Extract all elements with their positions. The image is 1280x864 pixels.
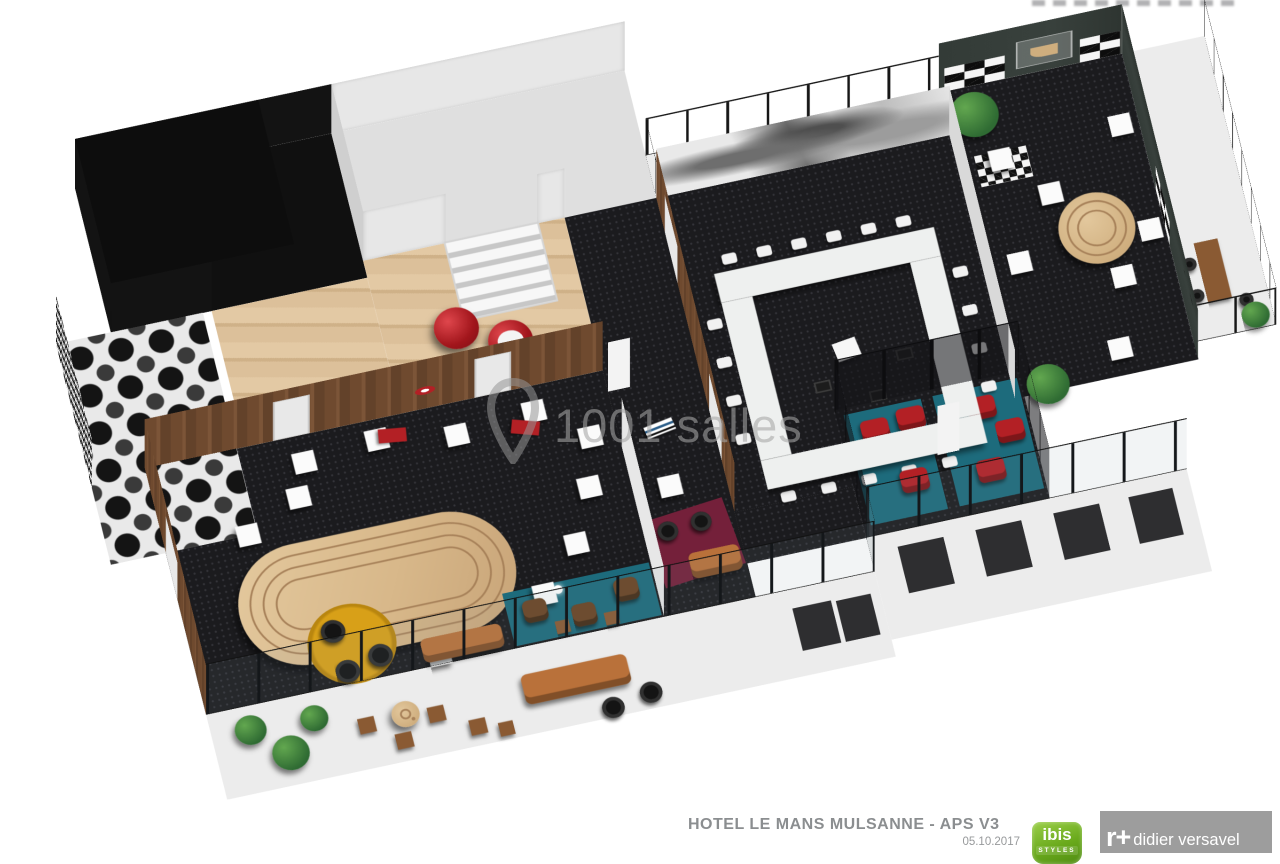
racing-roundel-sign (415, 384, 435, 396)
service-south-wall (537, 168, 564, 223)
meeting-chair (825, 230, 842, 243)
ibis-logo-name: ibis (1032, 825, 1082, 845)
meeting-chair (860, 222, 877, 235)
ibis-logo-subtitle: STYLES (1036, 846, 1078, 855)
red-racing-table (511, 419, 540, 435)
meeting-chair (725, 394, 742, 407)
architect-logo-name: didier versavel (1133, 831, 1239, 849)
architect-logo-mark: r+ (1106, 825, 1130, 849)
meeting-chair (756, 244, 773, 257)
meeting-chair (895, 215, 912, 228)
project-title: HOTEL LE MANS MULSANNE - APS V3 (688, 816, 1000, 834)
architect-logo: r+ didier versavel (1100, 811, 1272, 853)
meeting-chair (721, 252, 738, 265)
meeting-chair (820, 481, 837, 494)
hotel-floorplan-3d (20, 0, 1280, 845)
glass-display-panel (1016, 30, 1073, 69)
double-door (474, 351, 511, 398)
project-date: 05.10.2017 (940, 836, 1020, 848)
wood-quarter-decor (1030, 43, 1057, 59)
double-door (273, 394, 310, 441)
red-racing-table (378, 427, 407, 443)
facade-window-slot (897, 537, 954, 594)
column (937, 401, 959, 455)
ibis-styles-logo: ibis STYLES (1032, 822, 1082, 864)
service-north-wall (331, 21, 624, 133)
column (608, 338, 630, 392)
wood-side-table (498, 720, 516, 737)
